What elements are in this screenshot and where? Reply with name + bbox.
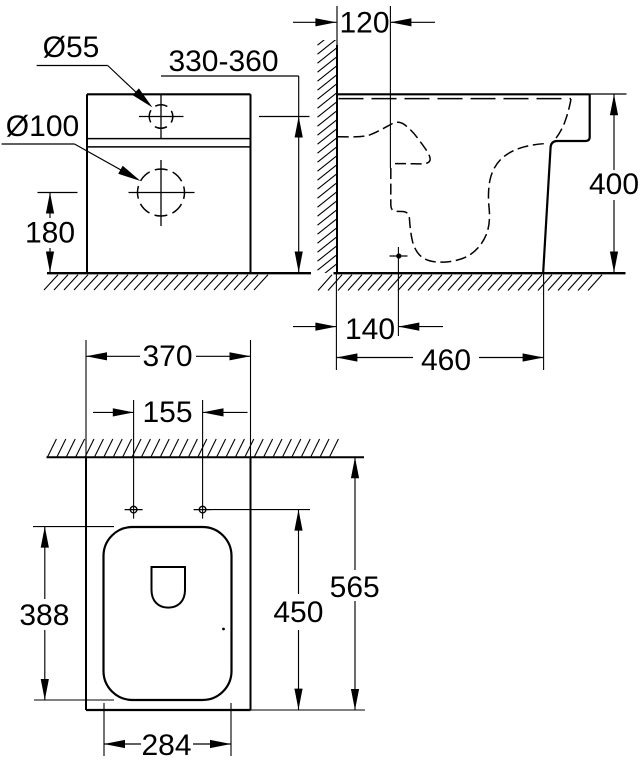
svg-text:120: 120 bbox=[339, 7, 389, 40]
svg-text:155: 155 bbox=[142, 396, 192, 429]
svg-text:Ø55: Ø55 bbox=[43, 31, 100, 64]
svg-text:330-360: 330-360 bbox=[168, 45, 278, 78]
svg-text:450: 450 bbox=[273, 596, 323, 629]
svg-text:460: 460 bbox=[421, 344, 471, 377]
svg-text:180: 180 bbox=[25, 217, 75, 250]
svg-text:284: 284 bbox=[141, 729, 191, 762]
svg-text:388: 388 bbox=[19, 599, 69, 632]
svg-text:140: 140 bbox=[345, 313, 395, 346]
svg-text:400: 400 bbox=[589, 168, 639, 201]
svg-text:Ø100: Ø100 bbox=[6, 110, 79, 143]
svg-text:370: 370 bbox=[142, 340, 192, 373]
svg-text:565: 565 bbox=[330, 571, 380, 604]
